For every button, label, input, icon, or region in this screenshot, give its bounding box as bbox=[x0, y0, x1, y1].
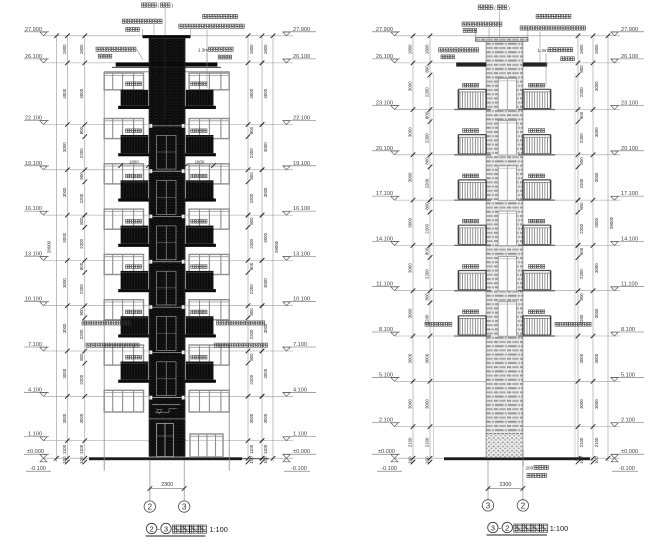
svg-text:4000: 4000 bbox=[249, 88, 254, 98]
svg-text:800: 800 bbox=[249, 217, 254, 225]
svg-text:3000: 3000 bbox=[263, 232, 268, 242]
svg-text:2200: 2200 bbox=[249, 374, 254, 384]
svg-text:2100: 2100 bbox=[424, 437, 429, 447]
svg-text:800: 800 bbox=[249, 262, 254, 270]
svg-text:4000: 4000 bbox=[62, 88, 67, 98]
svg-text:-: - bbox=[157, 525, 160, 534]
svg-text:2200: 2200 bbox=[424, 87, 429, 97]
svg-text:28000: 28000 bbox=[609, 216, 614, 229]
svg-text:100: 100 bbox=[407, 456, 412, 464]
svg-text:800: 800 bbox=[249, 126, 254, 134]
svg-text:1:100: 1:100 bbox=[209, 525, 228, 534]
svg-text:1800: 1800 bbox=[407, 44, 412, 54]
svg-text:3000: 3000 bbox=[263, 142, 268, 152]
svg-text:2200: 2200 bbox=[249, 148, 254, 158]
svg-text:3000: 3000 bbox=[62, 323, 67, 333]
svg-text:2200: 2200 bbox=[424, 133, 429, 143]
svg-text:800: 800 bbox=[424, 293, 429, 301]
svg-text:1100: 1100 bbox=[263, 444, 268, 454]
svg-text:3000: 3000 bbox=[407, 399, 412, 409]
svg-text:3000: 3000 bbox=[407, 353, 412, 363]
svg-text:2200: 2200 bbox=[579, 133, 584, 143]
svg-text:4000: 4000 bbox=[79, 88, 84, 98]
svg-text:3000: 3000 bbox=[594, 263, 599, 273]
svg-text:800: 800 bbox=[424, 65, 429, 73]
svg-text:1800: 1800 bbox=[195, 159, 205, 164]
svg-text:2: 2 bbox=[521, 501, 526, 510]
svg-text:100: 100 bbox=[62, 456, 67, 464]
svg-text:1800: 1800 bbox=[579, 44, 584, 54]
svg-text:1800: 1800 bbox=[249, 44, 254, 54]
svg-text:4000: 4000 bbox=[263, 88, 268, 98]
svg-text:3: 3 bbox=[182, 503, 187, 512]
svg-text:-: - bbox=[498, 524, 501, 533]
svg-text:100: 100 bbox=[594, 456, 599, 464]
svg-text:800: 800 bbox=[579, 65, 584, 73]
svg-text:800: 800 bbox=[579, 157, 584, 165]
svg-text:2200: 2200 bbox=[249, 193, 254, 203]
svg-text:800: 800 bbox=[79, 262, 84, 270]
svg-text:3000: 3000 bbox=[62, 278, 67, 288]
svg-text:3000: 3000 bbox=[579, 353, 584, 363]
svg-text:800: 800 bbox=[424, 111, 429, 119]
svg-text:100: 100 bbox=[579, 456, 584, 464]
svg-text:2100: 2100 bbox=[594, 437, 599, 447]
svg-text:3000: 3000 bbox=[424, 353, 429, 363]
svg-text:2200: 2200 bbox=[424, 223, 429, 233]
svg-text:3000: 3000 bbox=[263, 323, 268, 333]
svg-text:100: 100 bbox=[249, 456, 254, 464]
svg-text:3000: 3000 bbox=[407, 172, 412, 182]
svg-text:800: 800 bbox=[249, 308, 254, 316]
svg-text:100: 100 bbox=[424, 456, 429, 464]
svg-text:1.3m: 1.3m bbox=[538, 48, 548, 53]
svg-text:3000: 3000 bbox=[407, 308, 412, 318]
svg-text:3000: 3000 bbox=[594, 81, 599, 91]
svg-text:800: 800 bbox=[79, 217, 84, 225]
svg-text:3000: 3000 bbox=[407, 81, 412, 91]
svg-text:3000: 3000 bbox=[407, 263, 412, 273]
svg-text:2200: 2200 bbox=[79, 329, 84, 339]
svg-text:800: 800 bbox=[579, 293, 584, 301]
svg-text:1800: 1800 bbox=[79, 44, 84, 54]
svg-text:3000: 3000 bbox=[594, 172, 599, 182]
svg-text:3000: 3000 bbox=[579, 399, 584, 409]
svg-text:2: 2 bbox=[149, 524, 153, 533]
svg-text:1800: 1800 bbox=[424, 44, 429, 54]
svg-text:100: 100 bbox=[263, 456, 268, 464]
svg-text:2200: 2200 bbox=[249, 238, 254, 248]
svg-text:200: 200 bbox=[526, 466, 534, 471]
svg-text:2200: 2200 bbox=[79, 148, 84, 158]
svg-text:800: 800 bbox=[249, 172, 254, 180]
svg-text:3000: 3000 bbox=[263, 187, 268, 197]
svg-text:800: 800 bbox=[424, 157, 429, 165]
svg-text:1800: 1800 bbox=[129, 159, 139, 164]
svg-text:800: 800 bbox=[579, 247, 584, 255]
svg-text:2200: 2200 bbox=[79, 238, 84, 248]
svg-text:2200: 2200 bbox=[249, 329, 254, 339]
svg-text:1800: 1800 bbox=[594, 44, 599, 54]
svg-text:1100: 1100 bbox=[249, 444, 254, 454]
svg-text:2200: 2200 bbox=[579, 223, 584, 233]
svg-text:1100: 1100 bbox=[79, 444, 84, 454]
svg-text:2100: 2100 bbox=[407, 437, 412, 447]
svg-text:3000: 3000 bbox=[594, 399, 599, 409]
svg-text:3000: 3000 bbox=[594, 353, 599, 363]
svg-text:100: 100 bbox=[79, 456, 84, 464]
svg-text:800: 800 bbox=[249, 353, 254, 361]
svg-text:3: 3 bbox=[486, 501, 491, 510]
svg-text:800: 800 bbox=[424, 202, 429, 210]
svg-text:800: 800 bbox=[579, 111, 584, 119]
svg-text:3000: 3000 bbox=[62, 368, 67, 378]
svg-text:3000: 3000 bbox=[407, 127, 412, 137]
svg-text:3000: 3000 bbox=[263, 368, 268, 378]
svg-text:1800: 1800 bbox=[263, 44, 268, 54]
svg-text:800: 800 bbox=[424, 247, 429, 255]
svg-text:3: 3 bbox=[164, 524, 168, 533]
svg-text:1800: 1800 bbox=[62, 44, 67, 54]
svg-text:3000: 3000 bbox=[594, 217, 599, 227]
svg-text:2200: 2200 bbox=[79, 374, 84, 384]
svg-text:3000: 3000 bbox=[249, 413, 254, 423]
svg-text:3000: 3000 bbox=[62, 413, 67, 423]
svg-text:800: 800 bbox=[579, 202, 584, 210]
svg-text:3000: 3000 bbox=[263, 278, 268, 288]
svg-text:3000: 3000 bbox=[62, 232, 67, 242]
svg-text:2: 2 bbox=[505, 523, 509, 532]
svg-text:3000: 3000 bbox=[79, 413, 84, 423]
svg-text:2200: 2200 bbox=[579, 178, 584, 188]
svg-text:1:100: 1:100 bbox=[550, 524, 569, 533]
svg-text:1100: 1100 bbox=[62, 444, 67, 454]
svg-text:2200: 2200 bbox=[249, 284, 254, 294]
svg-text:2: 2 bbox=[148, 503, 153, 512]
svg-text:2200: 2200 bbox=[579, 269, 584, 279]
svg-text:1.3m: 1.3m bbox=[198, 47, 208, 52]
svg-text:3000: 3000 bbox=[424, 399, 429, 409]
svg-text:800: 800 bbox=[79, 172, 84, 180]
svg-text:3000: 3000 bbox=[594, 308, 599, 318]
svg-text:3: 3 bbox=[491, 523, 495, 532]
svg-text:2200: 2200 bbox=[424, 178, 429, 188]
svg-text:2200: 2200 bbox=[79, 284, 84, 294]
svg-text:2300: 2300 bbox=[499, 482, 511, 488]
svg-text:28000: 28000 bbox=[274, 240, 279, 253]
svg-text:28000: 28000 bbox=[47, 240, 52, 253]
svg-text:800: 800 bbox=[79, 353, 84, 361]
svg-text:3000: 3000 bbox=[62, 187, 67, 197]
svg-text:2100: 2100 bbox=[579, 437, 584, 447]
svg-text:3000: 3000 bbox=[62, 142, 67, 152]
svg-text:3000: 3000 bbox=[407, 217, 412, 227]
svg-text:800: 800 bbox=[79, 126, 84, 134]
svg-text:2200: 2200 bbox=[579, 87, 584, 97]
svg-text:3000: 3000 bbox=[263, 413, 268, 423]
svg-text:2200: 2200 bbox=[79, 193, 84, 203]
svg-text:2200: 2200 bbox=[424, 269, 429, 279]
svg-text:2300: 2300 bbox=[161, 482, 173, 488]
svg-text:3000: 3000 bbox=[594, 127, 599, 137]
svg-text:800: 800 bbox=[79, 308, 84, 316]
